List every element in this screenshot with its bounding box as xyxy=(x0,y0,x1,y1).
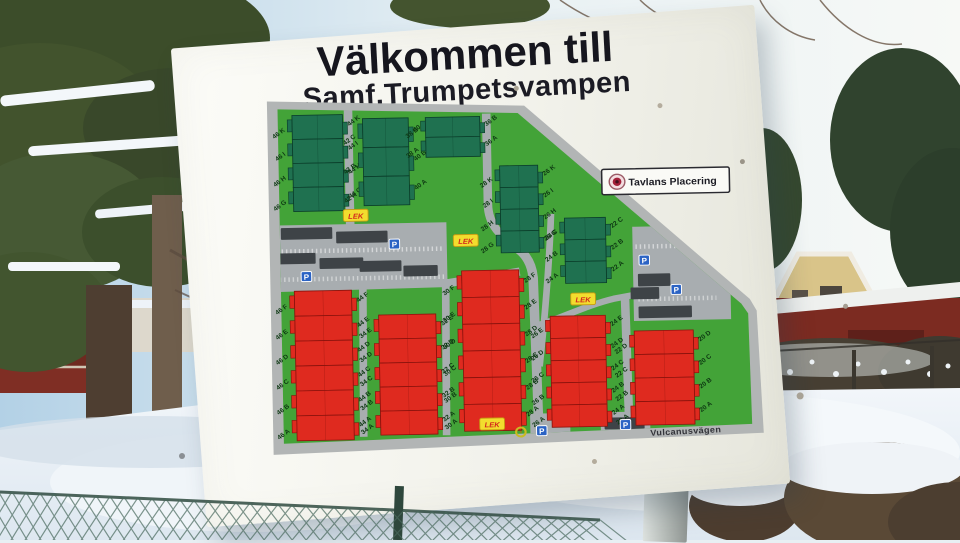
parking-sign: P xyxy=(620,419,631,429)
playground-sign: LEK xyxy=(453,234,478,246)
lek-label: LEK xyxy=(458,237,474,246)
parking-sign: P xyxy=(301,271,312,281)
lek-label: LEK xyxy=(575,295,591,304)
welcome-sign: Välkommen till Samf.Trumpetsvampen xyxy=(171,5,790,528)
lek-label: LEK xyxy=(484,420,500,429)
parking-label: P xyxy=(673,286,679,295)
parking-label: P xyxy=(641,256,647,265)
lek-label: LEK xyxy=(348,212,364,221)
playground-sign: LEK xyxy=(571,293,596,305)
playground-sign: LEK xyxy=(480,418,505,430)
parking-sign: P xyxy=(389,239,400,249)
parking-sign: P xyxy=(671,284,682,294)
parking-label: P xyxy=(623,421,629,430)
placard-label: Tavlans Placering xyxy=(628,176,716,188)
parking-label: P xyxy=(392,240,398,249)
board-location-placard: Tavlans Placering xyxy=(602,167,730,195)
parking-sign: P xyxy=(639,255,650,265)
parking-label: P xyxy=(539,427,545,436)
playground-sign: LEK xyxy=(343,209,368,221)
parking-label: P xyxy=(304,273,310,282)
parking-sign: P xyxy=(536,426,547,436)
tree-trunk xyxy=(152,195,182,443)
site-map: 46 K44 K46 I44 I46 H44 H46 G44 G42 C40 C… xyxy=(265,90,772,458)
